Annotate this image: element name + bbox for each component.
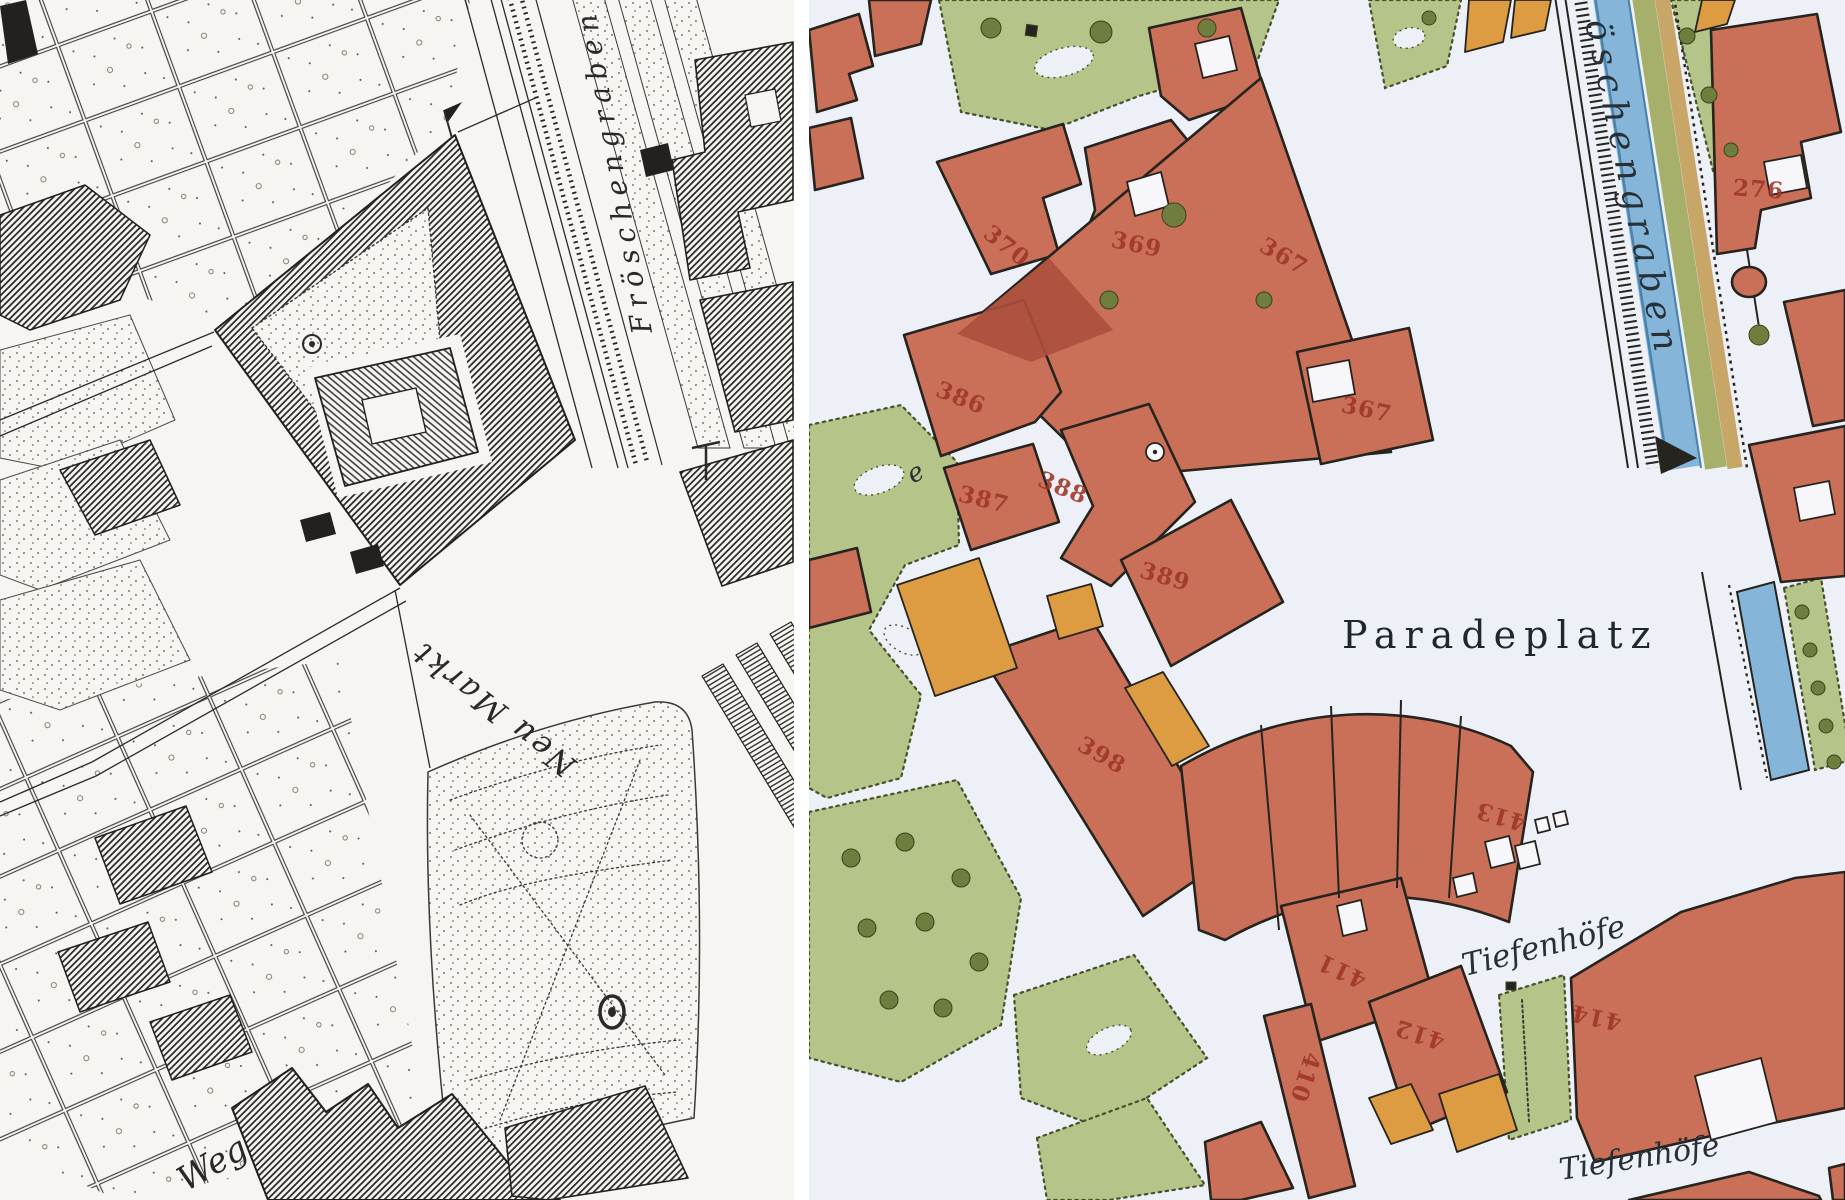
map-comparison: Neu Markt Weg Fröschengraben xyxy=(0,0,1845,1200)
left-map-panel: Neu Markt Weg Fröschengraben xyxy=(0,0,794,1200)
parcel-number: 276 xyxy=(1732,174,1785,204)
right-map-panel: 370 369 367 367 276 386 387 388 389 398 … xyxy=(809,0,1845,1200)
courtyard xyxy=(745,89,781,127)
paradeplatz-label: Paradeplatz xyxy=(1342,613,1659,657)
